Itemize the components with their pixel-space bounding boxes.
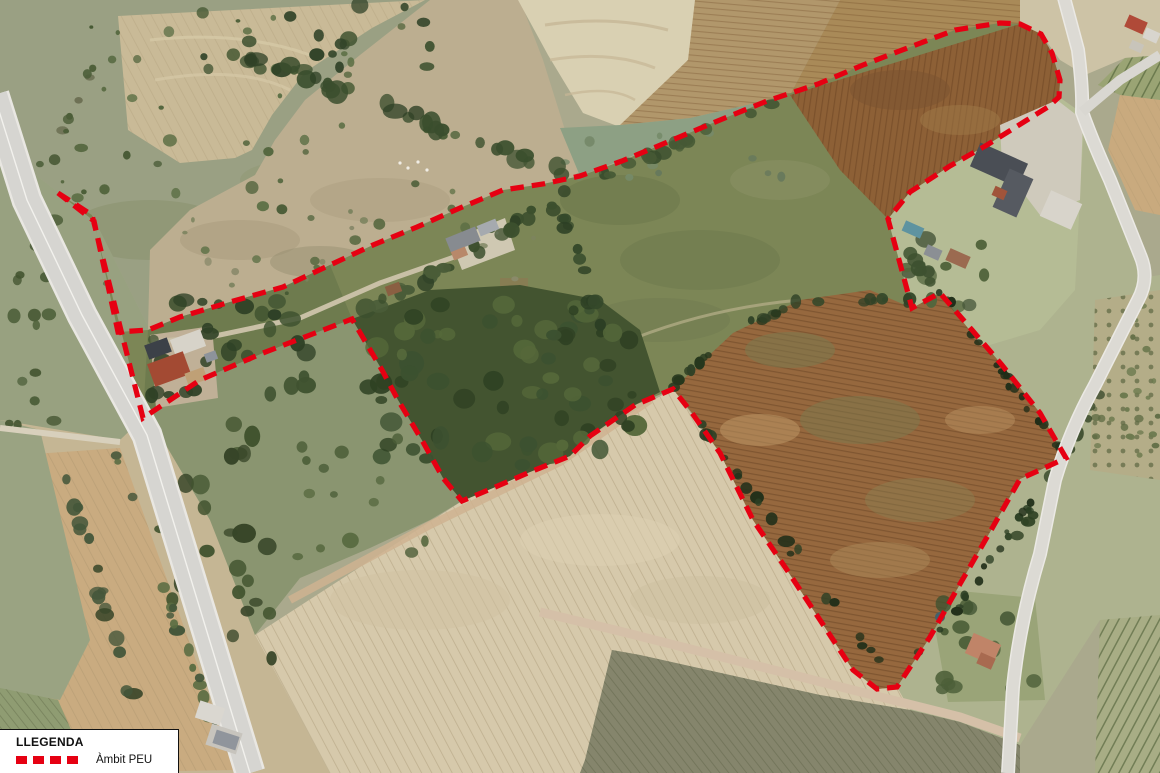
aerial-orthophoto <box>0 0 1160 773</box>
legend-title: LLEGENDA <box>16 735 178 749</box>
red-dashed-line-swatch <box>16 756 78 764</box>
legend-panel: LLEGENDA Àmbit PEU <box>0 729 179 773</box>
legend-item-ambit-peu: Àmbit PEU <box>16 754 178 766</box>
planning-map-page: LLEGENDA Àmbit PEU <box>0 0 1160 773</box>
legend-item-label: Àmbit PEU <box>96 754 152 766</box>
